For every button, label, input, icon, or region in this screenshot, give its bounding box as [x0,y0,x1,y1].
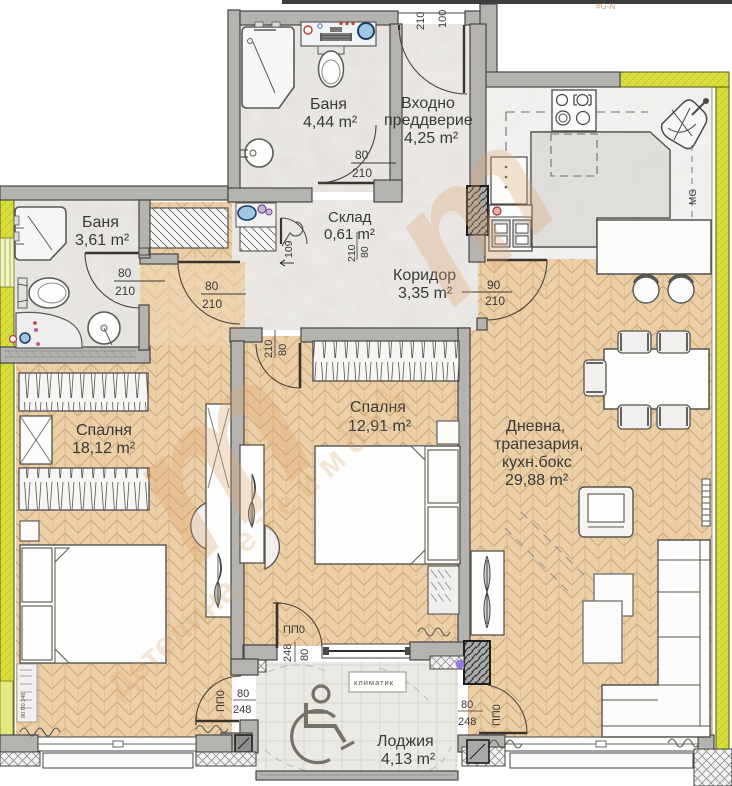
svg-text:248: 248 [233,704,251,716]
svg-text:80: 80 [277,344,289,356]
svg-text:80: 80 [237,688,249,700]
svg-text:4,44 m²: 4,44 m² [303,114,358,131]
svg-text:Дневна,: Дневна, [506,418,565,435]
svg-text:29,88 m²: 29,88 m² [505,472,569,489]
svg-text:трапезария,: трапезария, [494,436,584,453]
svg-text:Баня: Баня [310,96,347,113]
svg-text:кухн.бокс: кухн.бокс [502,454,572,471]
svg-text:Лоджия: Лоджия [377,733,434,750]
svg-text:Баня: Баня [82,214,119,231]
svg-text:ПП0: ПП0 [283,624,305,636]
svg-text:90 П0 248: 90 П0 248 [21,693,27,718]
svg-text:80: 80 [299,649,311,661]
svg-text:80: 80 [118,266,132,280]
svg-text:210: 210 [202,297,222,311]
svg-text:109: 109 [283,240,295,258]
svg-text:80: 80 [359,246,371,258]
svg-text:100: 100 [437,10,449,28]
svg-text:#G-N: #G-N [596,2,615,11]
svg-text:210: 210 [346,244,358,262]
svg-text:248: 248 [458,716,476,728]
svg-text:210: 210 [115,284,135,298]
svg-text:210: 210 [263,340,275,358]
svg-text:климатик: климатик [354,678,394,687]
svg-text:80: 80 [355,148,369,162]
svg-text:0,61 m²: 0,61 m² [324,226,375,243]
svg-text:ПП0: ПП0 [215,690,227,712]
svg-text:80: 80 [205,279,219,293]
svg-text:ПП0: ПП0 [491,704,503,726]
svg-text:3,61 m²: 3,61 m² [75,232,130,249]
svg-text:210: 210 [415,12,427,30]
svg-text:4,13 m²: 4,13 m² [381,751,436,768]
svg-text:80: 80 [461,699,473,711]
svg-text:248: 248 [282,644,294,662]
svg-text:MG: MG [688,189,699,205]
